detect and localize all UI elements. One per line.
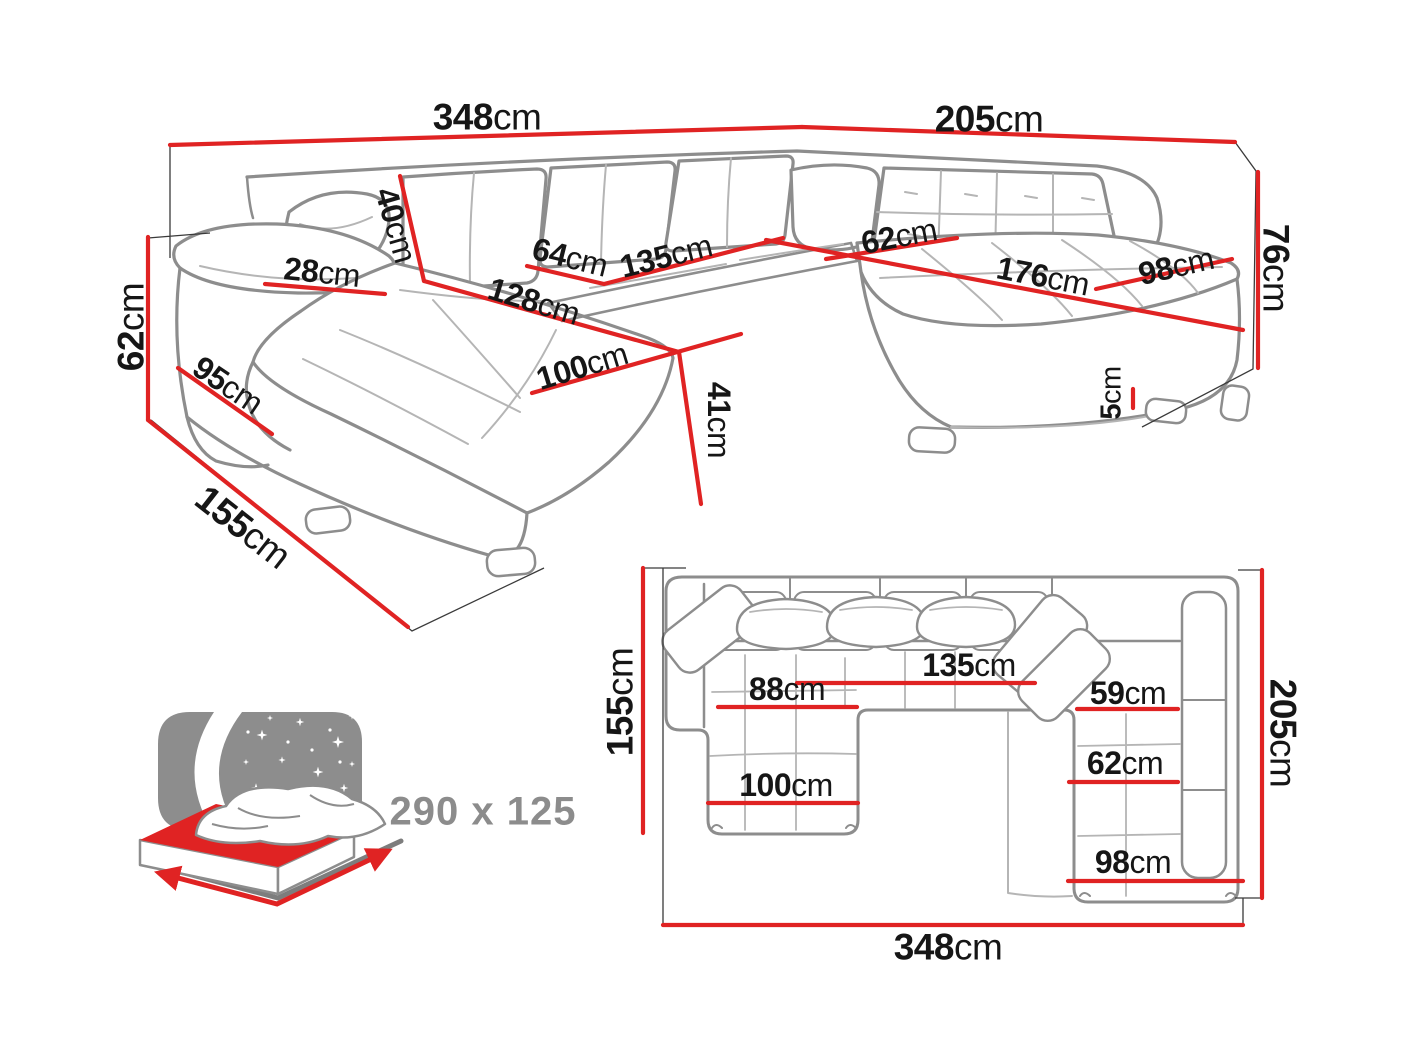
dim-plan-right-seat-width: 98cm [1095,846,1171,878]
bed-sleeping-size-label: 290 x 125 [390,790,577,835]
dim-plan-right-seat-depth: 62cm [1087,747,1163,779]
dim-plan-mid-seat-width: 135cm [922,649,1016,681]
dim-plan-right-depth: 205cm [1265,679,1302,788]
sofa-perspective-drawing [174,151,1250,577]
dim-persp-arm-top: 28cm [282,252,361,292]
dim-plan-chaise-inner: 88cm [749,673,825,705]
furniture-dimension-diagram: 348cm 205cm 76cm 62cm 95cm 155cm 28cm 40… [0,0,1408,1056]
dim-persp-seat-height: 41cm [703,382,735,458]
dim-persp-total-height: 76cm [1258,224,1295,312]
dim-persp-leg-height: 5cm [1098,366,1127,419]
dim-plan-right-inner: 59cm [1090,677,1166,709]
dim-persp-arm-height: 62cm [113,283,150,371]
dim-persp-back-width: 348cm [433,99,542,136]
bed-icon [140,712,401,904]
dim-plan-left-depth: 155cm [602,648,639,757]
dim-plan-chaise-width: 100cm [739,769,833,801]
chaise-cushion [253,263,673,513]
dim-plan-total-width: 348cm [894,929,1003,966]
dim-persp-right-side-width: 205cm [935,101,1044,138]
